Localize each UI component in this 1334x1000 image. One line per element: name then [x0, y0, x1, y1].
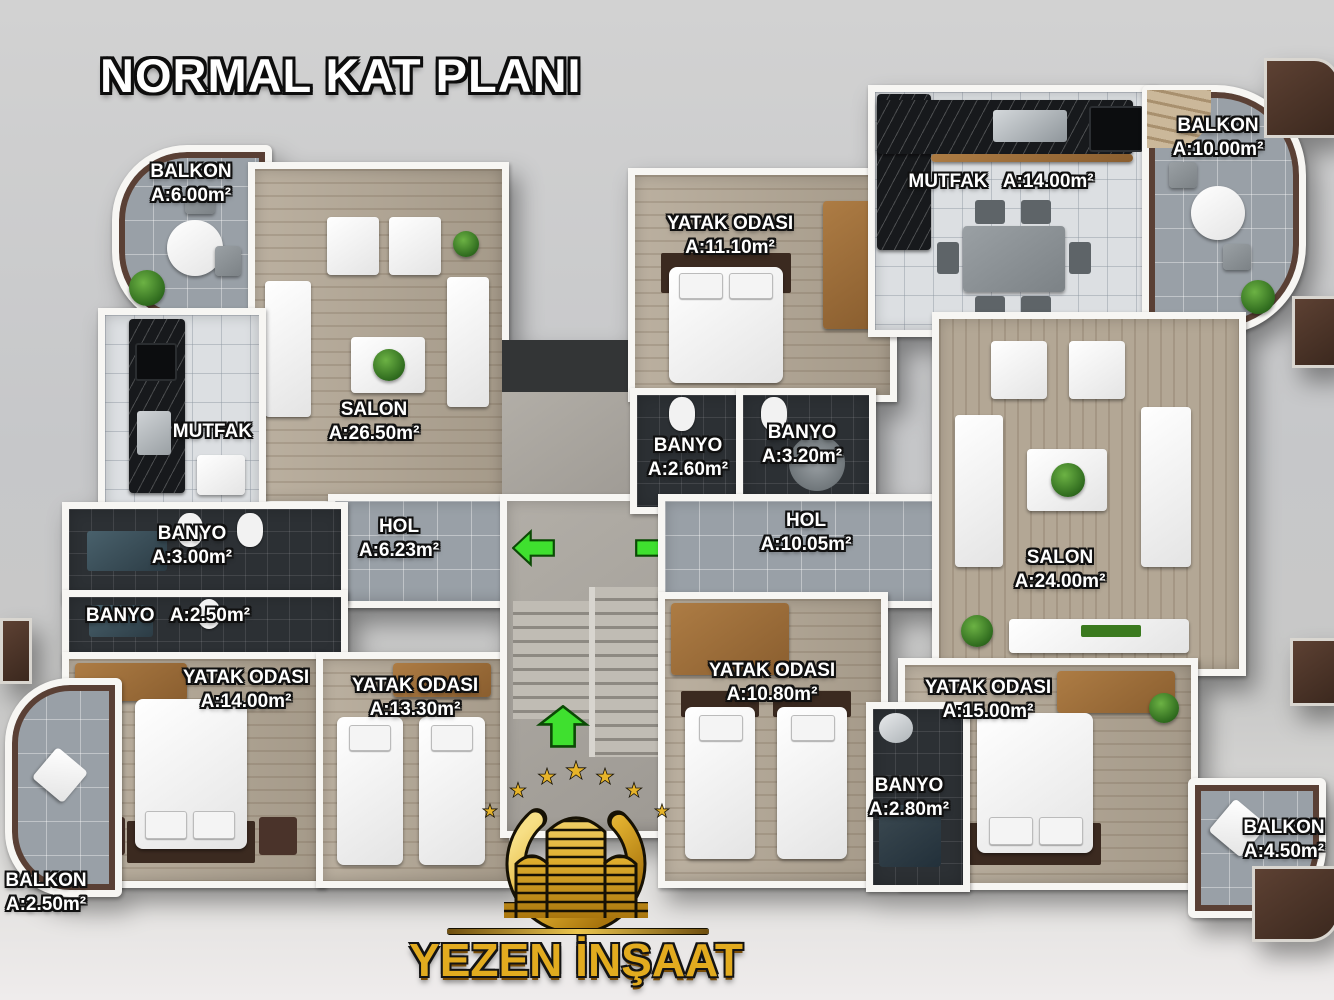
stove [135, 343, 177, 381]
armchair [991, 341, 1047, 399]
dining-chair [1021, 200, 1051, 224]
plant [453, 231, 479, 257]
room-label: BALKON A:4.50m² [1243, 816, 1324, 864]
plant [1051, 463, 1085, 497]
sofa [447, 277, 489, 407]
armchair [389, 217, 441, 275]
fridge [197, 455, 245, 495]
plant [1149, 693, 1179, 723]
room-label: BANYO A:3.00m² [152, 522, 232, 570]
svg-text:★: ★ [538, 767, 555, 788]
dining-chair [937, 242, 959, 274]
star-icons: ★ ★ ★ ★ ★ ★ ★ [483, 760, 668, 820]
svg-text:★: ★ [626, 781, 641, 800]
room-label: SALON A:24.00m² [1015, 546, 1106, 594]
room-salon-left [248, 162, 509, 508]
single-bed [337, 717, 403, 865]
toilet [237, 513, 263, 547]
roof-eave [1292, 296, 1334, 368]
exit-arrow-up-icon [535, 705, 591, 749]
roof-eave [1252, 866, 1334, 942]
cabinet [931, 154, 1133, 162]
room-label: YATAK ODASI A:15.00m² [925, 676, 1051, 724]
svg-text:★: ★ [566, 760, 586, 783]
balcony-bottom-left [5, 678, 122, 897]
room-mutfak-left [98, 308, 266, 518]
room-label: BALKON A:10.00m² [1173, 114, 1264, 162]
dining-table [963, 226, 1065, 292]
double-bed [669, 267, 783, 383]
room-label: BANYO A:2.50m² [81, 604, 255, 628]
staircase-flight [513, 601, 589, 719]
room-label: MUTFAK A:14.00m² [903, 170, 1098, 194]
plant [373, 349, 405, 381]
sink [137, 411, 171, 455]
room-label: YATAK ODASI A:11.10m² [667, 212, 793, 260]
crescent-building-logo-icon: ★ ★ ★ ★ ★ ★ ★ [426, 760, 726, 928]
chair [32, 747, 88, 803]
room-label: BANYO A:3.20m² [762, 421, 842, 469]
roof-eave [1290, 638, 1334, 706]
armchair [1069, 341, 1125, 399]
svg-text:★: ★ [655, 803, 668, 820]
exit-arrow-left-icon [512, 522, 556, 574]
room-label: BANYO A:2.60m² [648, 434, 728, 482]
room-yatak-1110 [628, 168, 897, 402]
room-label: SALON A:26.50m² [329, 398, 420, 446]
sofa [265, 281, 311, 417]
room-mutfak-right [868, 85, 1158, 337]
floor-plan-canvas: NORMAL KAT PLANI [0, 0, 1334, 1000]
chair [1169, 162, 1197, 188]
room-label: YATAK ODASI A:13.30m² [352, 674, 478, 722]
room-label: HOL A:6.23m² [359, 515, 439, 563]
dining-chair [1069, 242, 1091, 274]
single-bed [777, 707, 847, 859]
plant [1241, 280, 1275, 314]
dining-chair [975, 200, 1005, 224]
room-label: BALKON A:6.00m² [150, 160, 231, 208]
roof-eave [0, 618, 32, 684]
room-label: BANYO A:2.80m² [869, 774, 949, 822]
toilet [669, 397, 695, 431]
roof-eave [1264, 58, 1334, 138]
sofa [1141, 407, 1191, 567]
svg-text:★: ★ [596, 767, 613, 788]
room-salon-right [932, 312, 1246, 676]
nightstand [259, 817, 297, 855]
sofa [955, 415, 1003, 567]
armchair [327, 217, 379, 275]
room-label: YATAK ODASI A:10.80m² [709, 659, 835, 707]
stove [1089, 106, 1143, 152]
plant [961, 615, 993, 647]
chair [215, 246, 241, 276]
tv [1081, 625, 1141, 637]
svg-text:★: ★ [483, 803, 496, 820]
room-label: HOL A:10.05m² [761, 509, 852, 557]
round-table [1191, 186, 1245, 240]
room-label: BALKON A:2.50m² [5, 869, 86, 917]
svg-text:★: ★ [510, 781, 525, 800]
sink [879, 713, 913, 743]
sink [993, 110, 1067, 142]
company-name: YEZEN İNŞAAT [409, 933, 743, 987]
room-label: YATAK ODASI A:14.00m² [183, 666, 309, 714]
room-label: MUTFAK [168, 420, 272, 444]
plant [129, 270, 165, 306]
chair [1223, 244, 1251, 270]
double-bed [135, 699, 247, 849]
double-bed [977, 713, 1093, 853]
